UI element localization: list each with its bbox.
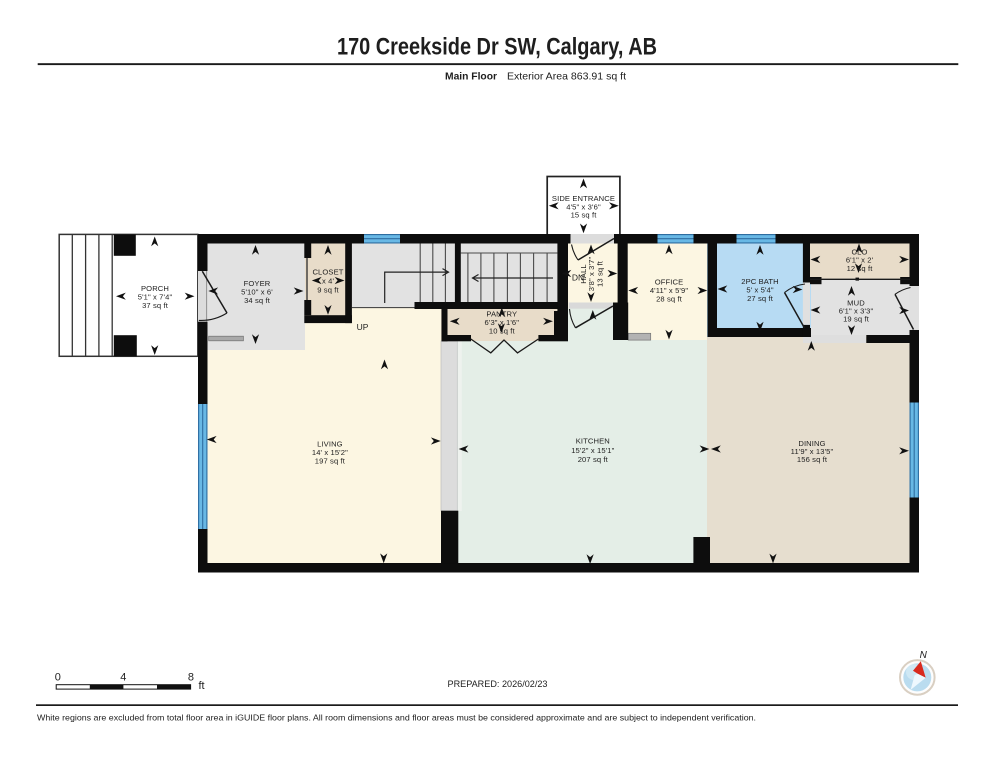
svg-text:9 sq ft: 9 sq ft — [317, 285, 339, 294]
svg-text:15 sq ft: 15 sq ft — [571, 211, 598, 220]
svg-text:27 sq ft: 27 sq ft — [747, 294, 774, 303]
svg-text:Main Floor: Main Floor — [445, 71, 497, 82]
svg-text:34 sq ft: 34 sq ft — [244, 296, 271, 305]
svg-text:CLOSET: CLOSET — [312, 267, 343, 276]
svg-text:ft: ft — [199, 680, 205, 692]
svg-text:N: N — [920, 650, 928, 661]
svg-text:156 sq ft: 156 sq ft — [797, 455, 828, 464]
svg-text:15'2" x 15'1": 15'2" x 15'1" — [571, 446, 614, 455]
svg-text:10 sq ft: 10 sq ft — [489, 326, 516, 335]
svg-text:KITCHEN: KITCHEN — [576, 437, 610, 446]
svg-text:28 sq ft: 28 sq ft — [656, 294, 683, 303]
svg-text:0: 0 — [55, 672, 61, 684]
svg-text:37 sq ft: 37 sq ft — [142, 301, 169, 310]
svg-text:197 sq ft: 197 sq ft — [315, 457, 346, 466]
svg-text:UP: UP — [357, 322, 369, 332]
svg-text:Exterior Area 863.91 sq ft: Exterior Area 863.91 sq ft — [507, 70, 626, 82]
svg-text:4: 4 — [120, 672, 126, 684]
svg-text:13 sq ft: 13 sq ft — [595, 260, 604, 287]
svg-text:170 Creekside Dr SW, Calgary,: 170 Creekside Dr SW, Calgary, AB — [337, 34, 657, 61]
svg-text:12 sq ft: 12 sq ft — [847, 264, 874, 273]
svg-text:White regions are excluded fro: White regions are excluded from total fl… — [37, 712, 756, 722]
svg-text:x 4': x 4' — [322, 276, 334, 285]
svg-text:19 sq ft: 19 sq ft — [843, 315, 870, 324]
svg-text:207 sq ft: 207 sq ft — [578, 455, 609, 464]
svg-text:PREPARED: 2026/02/23: PREPARED: 2026/02/23 — [448, 679, 548, 690]
svg-text:DN: DN — [572, 273, 584, 283]
svg-text:8: 8 — [188, 672, 194, 684]
